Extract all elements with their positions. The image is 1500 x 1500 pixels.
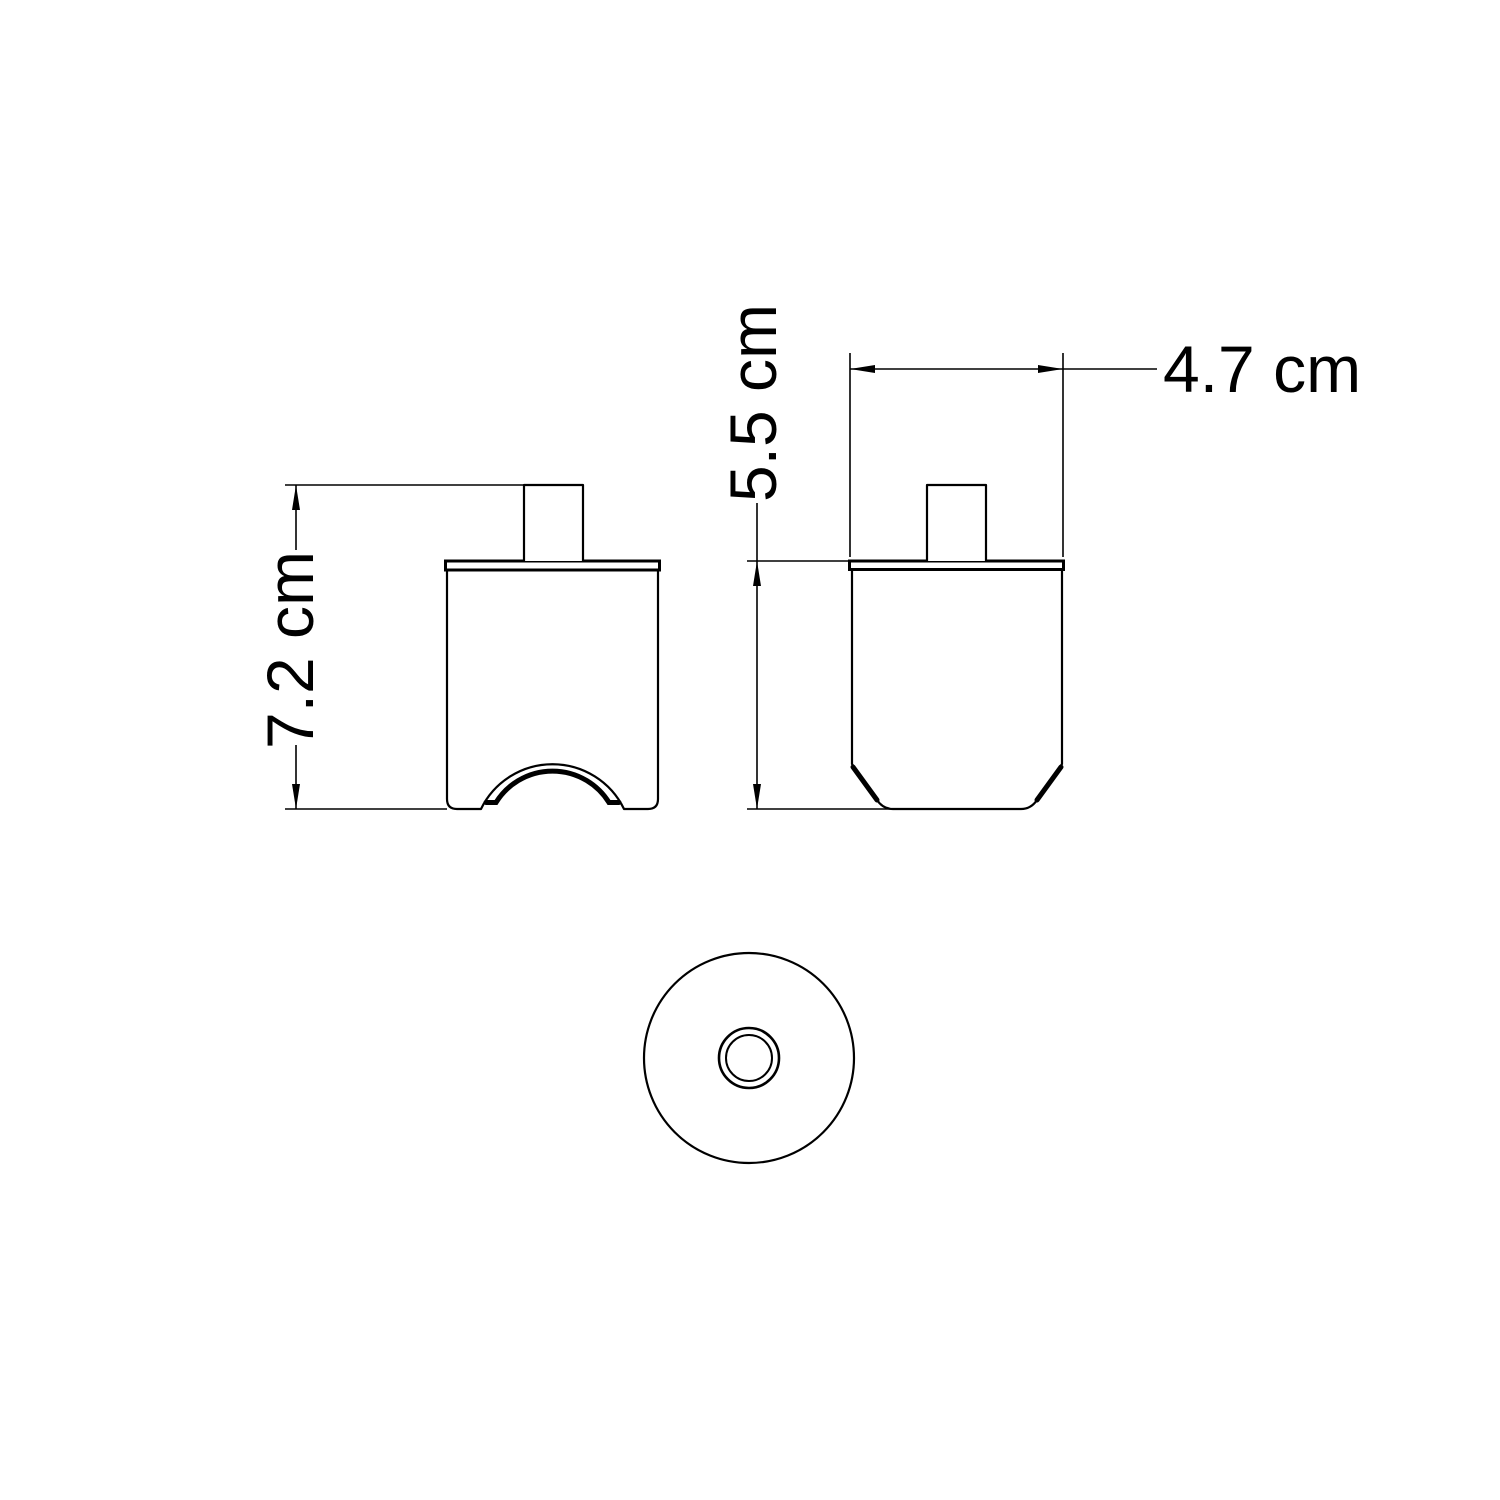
arrow-right-icon bbox=[1038, 365, 1063, 373]
arrow-down-icon bbox=[292, 784, 300, 809]
technical-drawing-canvas: 7.2 cm 4.7 cm 5.5 cm bbox=[0, 0, 1500, 1500]
side-view-body bbox=[852, 569, 1062, 809]
side-view bbox=[850, 485, 1064, 809]
front-view bbox=[446, 485, 660, 809]
arrow-left-icon bbox=[850, 365, 875, 373]
bottom-view bbox=[644, 953, 854, 1163]
front-view-stem bbox=[524, 485, 583, 561]
bottom-view-hole-inner-circle bbox=[726, 1035, 772, 1081]
side-width-label: 4.7 cm bbox=[1163, 332, 1361, 406]
side-view-stem bbox=[927, 485, 986, 561]
side-view-cap-plate bbox=[850, 561, 1064, 570]
front-height-label: 7.2 cm bbox=[253, 551, 327, 749]
side-height-label: 5.5 cm bbox=[716, 304, 790, 502]
front-view-cap-plate bbox=[446, 561, 660, 570]
arrow-down-icon bbox=[753, 784, 761, 809]
arrow-up-icon bbox=[292, 485, 300, 510]
arrow-up-icon bbox=[753, 561, 761, 586]
